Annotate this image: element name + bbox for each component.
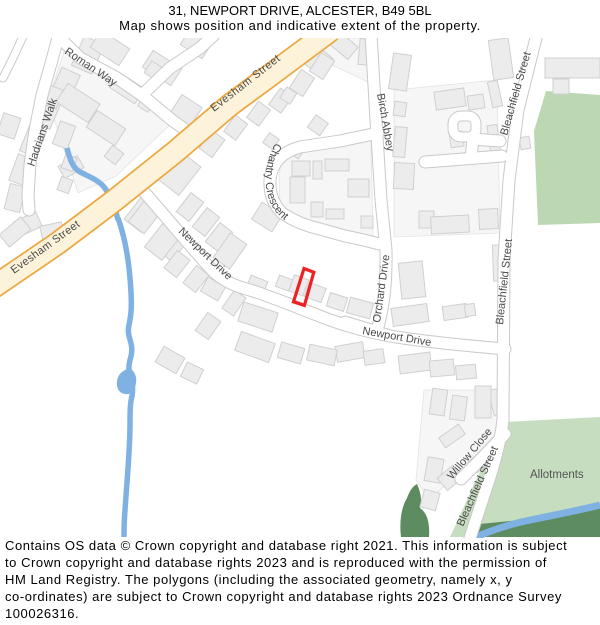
svg-text:Allotments: Allotments <box>530 469 584 481</box>
